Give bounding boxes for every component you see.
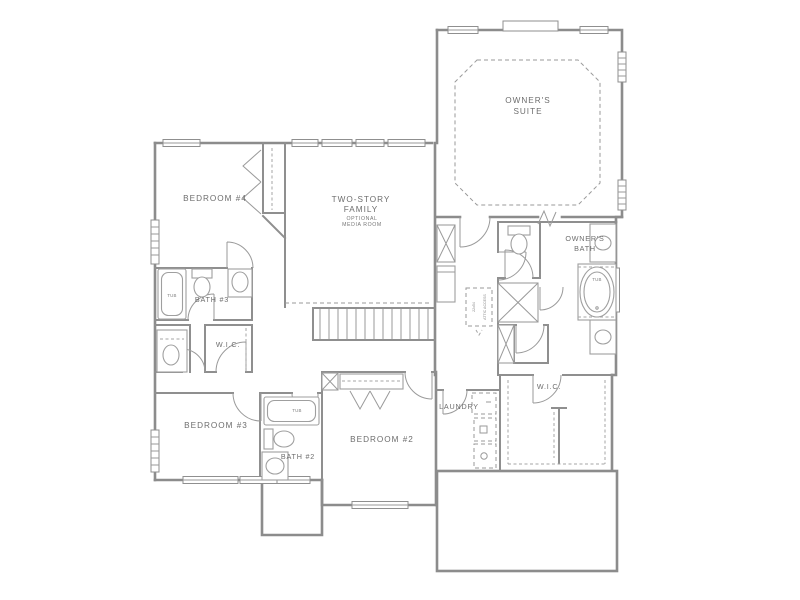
- sink-icon: [590, 224, 616, 262]
- bedroom4-label: BEDROOM #4: [183, 194, 247, 203]
- family-label-2: FAMILY: [344, 205, 379, 214]
- window: [163, 140, 200, 147]
- bedroom2-closet: [322, 373, 403, 409]
- attic-access-label: ATTIC ACCESS: [483, 294, 487, 320]
- window: [183, 477, 238, 484]
- window: [448, 27, 478, 34]
- linen-x-box: [498, 325, 514, 363]
- bedroom3-label: BEDROOM #3: [184, 421, 248, 430]
- owners-suite-label-1: OWNER'S: [505, 96, 550, 105]
- bath3-label: BATH #3: [195, 295, 229, 304]
- bedroom2-bifold-doors: [350, 391, 390, 409]
- window: [580, 27, 608, 34]
- owners-suite-label-2: SUITE: [513, 107, 542, 116]
- bedroom4-door: [227, 242, 253, 268]
- sink-icon: [590, 320, 616, 354]
- owners-bath-label-2: BATH: [574, 244, 596, 253]
- staircase: [285, 303, 435, 340]
- linen-closet-door: [516, 325, 544, 353]
- wic-hall-label: W.I.C.: [216, 340, 240, 349]
- window: [618, 180, 626, 210]
- wic-owner-label: W.I.C.: [537, 382, 561, 391]
- bedroom2-label: BEDROOM #2: [350, 435, 414, 444]
- suite-bay-bump: [503, 21, 558, 31]
- bath2-label: BATH #2: [281, 452, 315, 461]
- toilet-icon: [264, 429, 294, 449]
- tub-icon: TUB: [158, 269, 186, 319]
- window: [151, 220, 159, 264]
- floor-plan-drawing: TUB TUB TUB: [0, 0, 800, 600]
- bedroom2-door: [405, 372, 432, 399]
- window: [322, 140, 352, 147]
- bath-entry-door: [498, 252, 526, 280]
- tub-label: TUB: [292, 408, 301, 413]
- owner-tub-icon: TUB: [578, 264, 616, 320]
- sink-icon: [157, 330, 187, 372]
- shower-icon: [498, 283, 538, 322]
- hall-cabinet: [437, 266, 455, 302]
- tub-label: TUB: [592, 277, 601, 282]
- suite-entry-door: [460, 217, 490, 247]
- window: [352, 502, 408, 509]
- toilet-icon: [192, 269, 212, 297]
- bedroom4-bifold-doors: [243, 150, 261, 214]
- laundry-label: LAUNDRY: [439, 402, 479, 411]
- stair-treads: [320, 309, 428, 339]
- floor-plan-page: TUB TUB TUB: [0, 0, 800, 600]
- family-label-1: TWO-STORY: [332, 195, 391, 204]
- toilet-icon: [508, 226, 530, 254]
- shower-door: [540, 287, 563, 310]
- window: [151, 430, 159, 472]
- bottom-right-area: [437, 471, 617, 571]
- owner-wic-shelves: [508, 380, 605, 464]
- owners-bath-label-1: OWNER'S: [565, 234, 604, 243]
- media-label-2: MEDIA ROOM: [342, 222, 382, 228]
- sink-icon: [228, 269, 252, 297]
- window: [356, 140, 384, 147]
- chase-box: [437, 225, 455, 262]
- tub-icon: TUB: [264, 397, 319, 425]
- tub-label: TUB: [167, 293, 176, 298]
- attic-access-note: 22x54 ATTIC ACCESS: [466, 288, 492, 335]
- tray-ceiling-outline: [455, 60, 600, 205]
- attic-size-label: 22x54: [472, 302, 476, 312]
- exterior-bump: [262, 480, 322, 535]
- bedroom3-door: [233, 393, 261, 421]
- window: [292, 140, 318, 147]
- window: [388, 140, 425, 147]
- window: [618, 52, 626, 82]
